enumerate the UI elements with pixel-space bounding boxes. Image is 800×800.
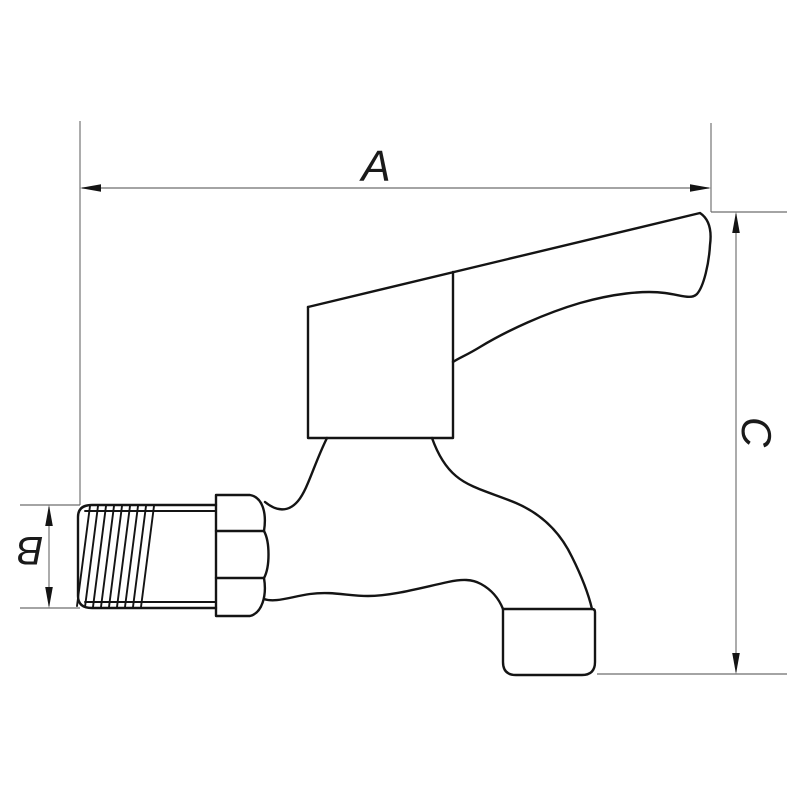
dimension-b-label: B	[17, 528, 44, 572]
spout-outlet	[503, 609, 595, 675]
faucet-drawing	[77, 213, 711, 675]
dimension-lines	[45, 184, 740, 674]
lever-handle	[308, 213, 711, 362]
body-right-curve	[432, 438, 592, 609]
arrowhead-b-bottom	[45, 587, 53, 608]
dimension-c-label: C	[733, 417, 780, 448]
arrowhead-c-bottom	[732, 653, 740, 674]
thread-hatch-lines	[77, 506, 154, 607]
hex-nut	[216, 495, 269, 616]
technical-drawing-page: A B C	[0, 0, 800, 800]
dimension-a-label: A	[358, 142, 390, 191]
arrowhead-a-left	[80, 184, 101, 192]
technical-drawing-canvas: A B C	[0, 0, 800, 800]
body-underside-curve	[264, 580, 503, 609]
arrowhead-c-top	[732, 212, 740, 233]
arrowhead-b-top	[45, 505, 53, 526]
valve-bonnet-body	[308, 272, 453, 438]
arrowhead-a-right	[690, 184, 711, 192]
dimension-labels: A B C	[17, 142, 780, 572]
body-neck-left-curve	[265, 438, 327, 509]
